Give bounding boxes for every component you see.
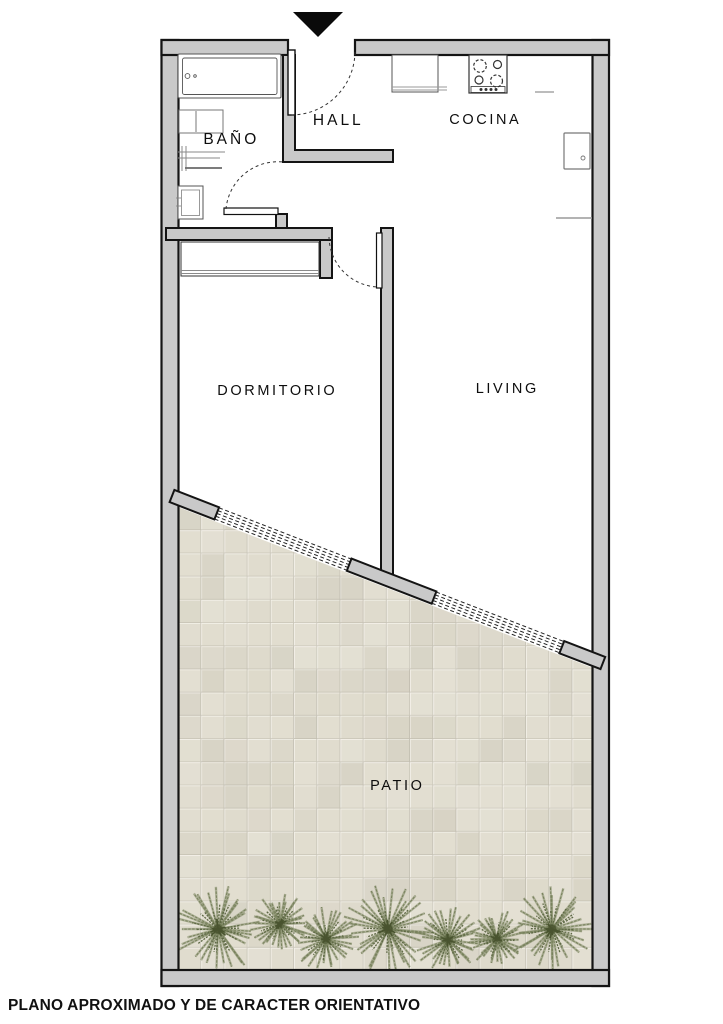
stove xyxy=(469,55,507,93)
bathroom-door-jamb xyxy=(276,214,287,228)
floor-plan-canvas xyxy=(0,0,723,1024)
wall-right xyxy=(593,40,610,986)
bedroom-closet xyxy=(181,242,319,276)
entrance-door xyxy=(288,50,355,115)
partition-wall-bedroom-living xyxy=(381,228,393,576)
bedroom-door-swing-arc xyxy=(329,237,377,287)
wall-top-left-segment xyxy=(162,40,289,55)
entrance-marker-icon xyxy=(293,12,343,37)
kitchen-counter xyxy=(392,55,447,92)
refrigerator xyxy=(564,133,590,169)
disclaimer-note: PLANO APROXIMADO Y DE CARACTER ORIENTATI… xyxy=(8,997,420,1015)
room-label-hall: HALL xyxy=(310,112,363,130)
room-label-bano: BAÑO xyxy=(201,131,260,149)
toilet xyxy=(176,186,203,219)
hall-wall xyxy=(283,55,393,162)
bathtub xyxy=(178,54,281,98)
wall-bottom xyxy=(162,970,610,986)
bedroom-door-leaf xyxy=(377,233,383,288)
bidet xyxy=(178,146,225,171)
room-label-cocina: COCINA xyxy=(447,112,522,128)
room-label-patio: PATIO xyxy=(368,778,425,794)
entrance-door-leaf xyxy=(288,50,295,115)
bathroom-door-leaf xyxy=(224,208,278,215)
bathroom-sink xyxy=(179,110,223,133)
wall-left xyxy=(162,40,179,986)
bathroom-door xyxy=(224,162,283,215)
room-label-living: LIVING xyxy=(473,381,539,397)
bathroom-door-swing-arc xyxy=(226,162,283,209)
floor-plan: BAÑO HALL COCINA DORMITORIO LIVING PATIO… xyxy=(0,0,723,1024)
wall-top-right-segment xyxy=(355,40,609,55)
bedroom-door xyxy=(329,233,382,288)
entrance-door-swing-arc xyxy=(292,50,356,115)
room-label-dormitorio: DORMITORIO xyxy=(215,383,338,399)
bathroom-south-wall xyxy=(166,228,332,240)
